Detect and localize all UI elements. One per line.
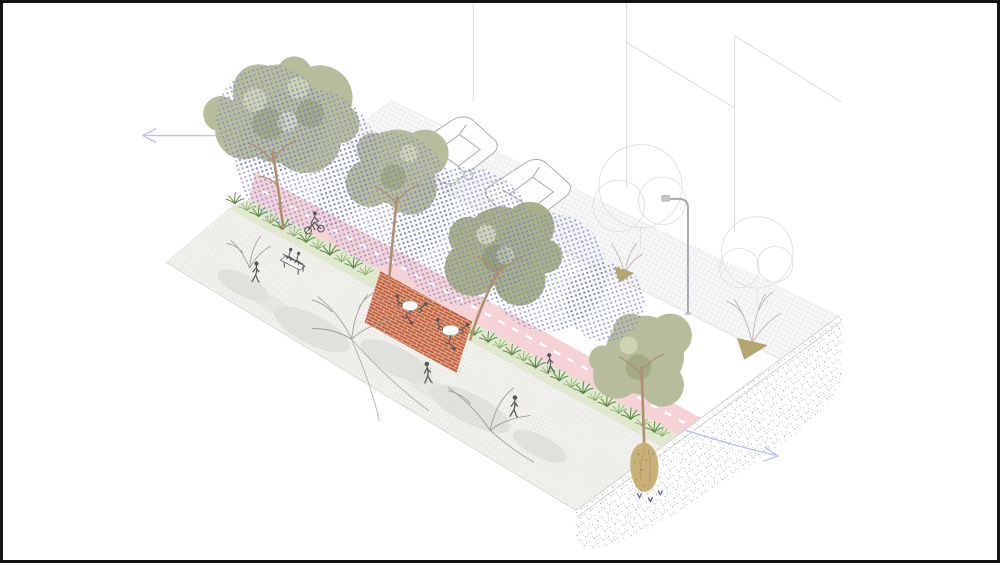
illustration-frame — [0, 0, 1000, 563]
street-light-lamp-head — [662, 195, 670, 201]
street-axonometric-diagram — [3, 3, 997, 560]
